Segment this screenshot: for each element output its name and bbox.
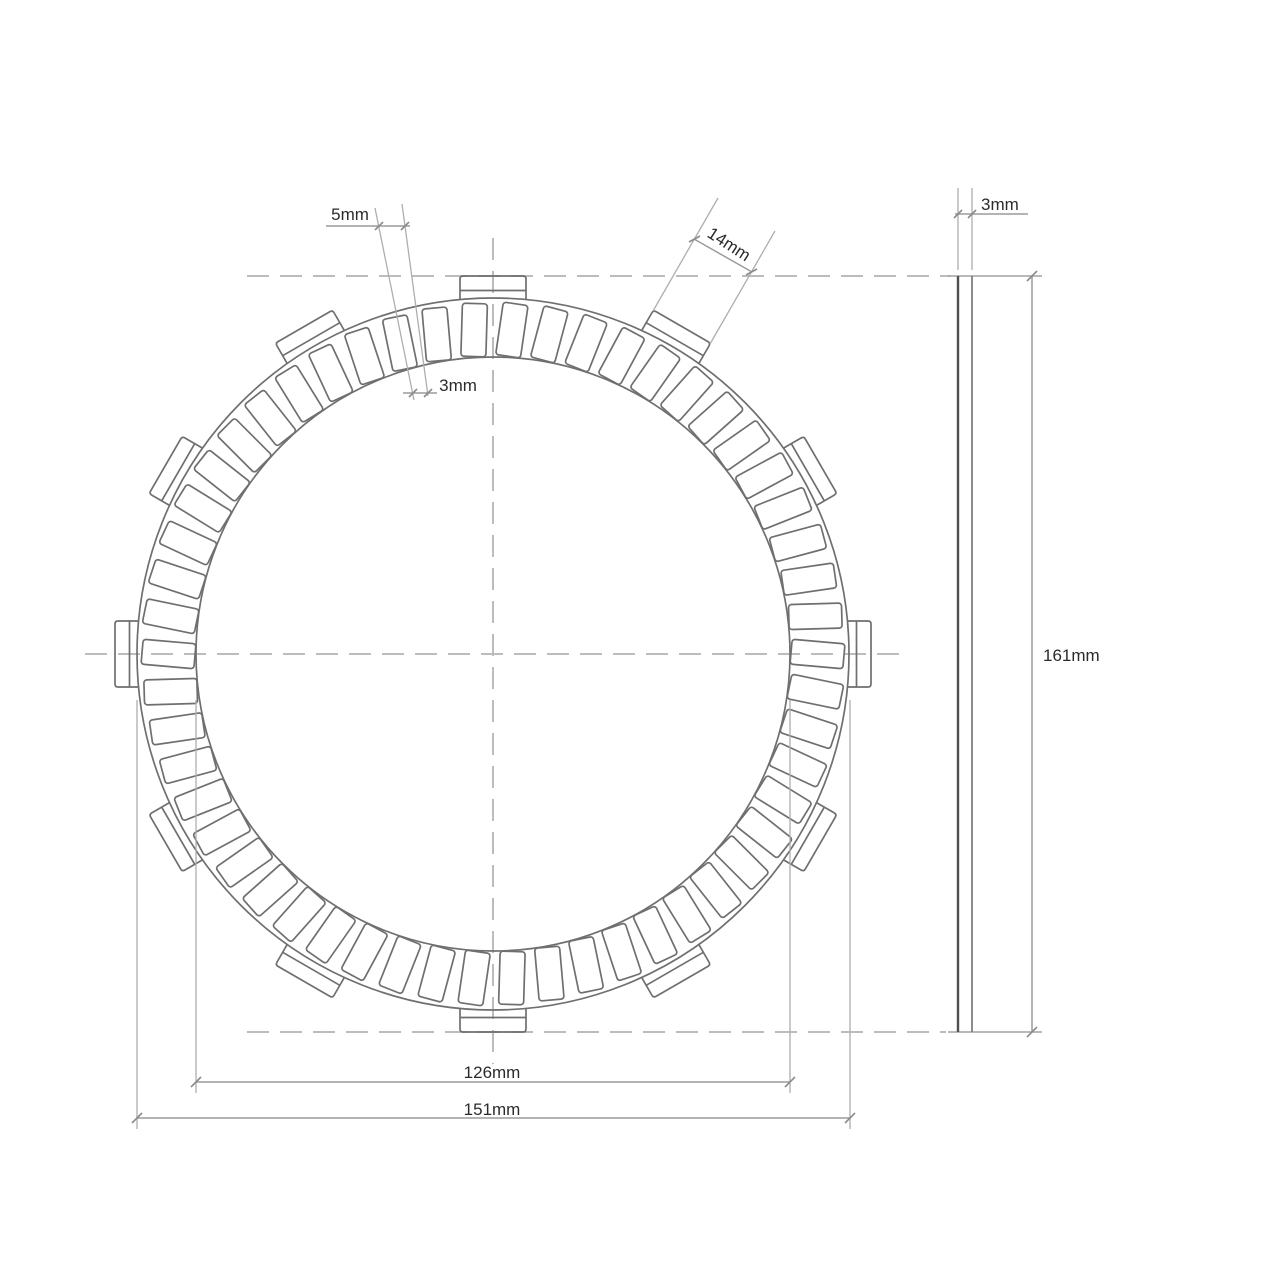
- friction-pad: [633, 906, 678, 965]
- friction-pad: [496, 302, 528, 358]
- friction-pad: [601, 923, 641, 981]
- friction-pad: [458, 950, 490, 1006]
- friction-pad: [787, 674, 844, 709]
- plate-thickness-label: 3mm: [981, 195, 1019, 214]
- friction-pad: [788, 603, 842, 630]
- friction-pad: [689, 861, 741, 918]
- friction-pad: [769, 524, 827, 562]
- friction-pad: [379, 936, 422, 994]
- technical-drawing-canvas: 5mm3mm14mm3mm161mm126mm151mm: [0, 0, 1287, 1287]
- drive-tab-step-line: [162, 444, 195, 501]
- overall-diameter-label: 161mm: [1043, 646, 1100, 665]
- friction-pad: [244, 389, 296, 446]
- drive-tab-step-line: [791, 807, 824, 864]
- friction-pad: [193, 449, 250, 501]
- drive-tab-step-line: [283, 323, 340, 356]
- friction-pad: [688, 391, 744, 445]
- drive-tab-step-line: [646, 952, 703, 985]
- friction-pad: [530, 306, 568, 364]
- friction-pad: [535, 946, 565, 1001]
- friction-pad: [148, 559, 206, 599]
- friction-pad: [565, 314, 608, 372]
- pad-groove-inner-width-label: 3mm: [439, 376, 477, 395]
- friction-pad: [754, 775, 812, 824]
- clutch-plate-technical-drawing: 5mm3mm14mm3mm161mm126mm151mm: [0, 0, 1287, 1287]
- friction-pad: [499, 951, 526, 1005]
- pad-groove-outer-width-label: 5mm: [331, 205, 369, 224]
- friction-pad: [217, 418, 272, 473]
- friction-pad: [144, 678, 198, 705]
- friction-pad: [736, 806, 793, 858]
- friction-pad: [242, 863, 298, 917]
- tab-width-extension-line: [653, 198, 718, 311]
- friction-pad: [754, 487, 812, 530]
- outer-diameter-label: 151mm: [464, 1100, 521, 1119]
- friction-pad: [422, 307, 452, 362]
- friction-pad: [344, 327, 384, 385]
- friction-pad: [568, 936, 603, 993]
- friction-pad: [714, 835, 769, 890]
- drive-tab-step-line: [162, 807, 195, 864]
- friction-pad: [660, 366, 714, 422]
- friction-pad: [780, 709, 838, 749]
- friction-pad: [418, 945, 456, 1003]
- friction-pad: [308, 344, 353, 403]
- friction-pad: [149, 713, 205, 745]
- friction-pad: [461, 303, 488, 357]
- friction-pad: [382, 315, 417, 372]
- friction-inner-diameter-label: 126mm: [464, 1063, 521, 1082]
- friction-pad: [174, 778, 232, 821]
- friction-pad: [142, 599, 199, 634]
- friction-pad: [159, 746, 217, 784]
- friction-pad: [781, 563, 837, 595]
- friction-pad: [174, 484, 232, 533]
- drive-tab-step-line: [791, 444, 824, 501]
- friction-pad: [272, 886, 326, 942]
